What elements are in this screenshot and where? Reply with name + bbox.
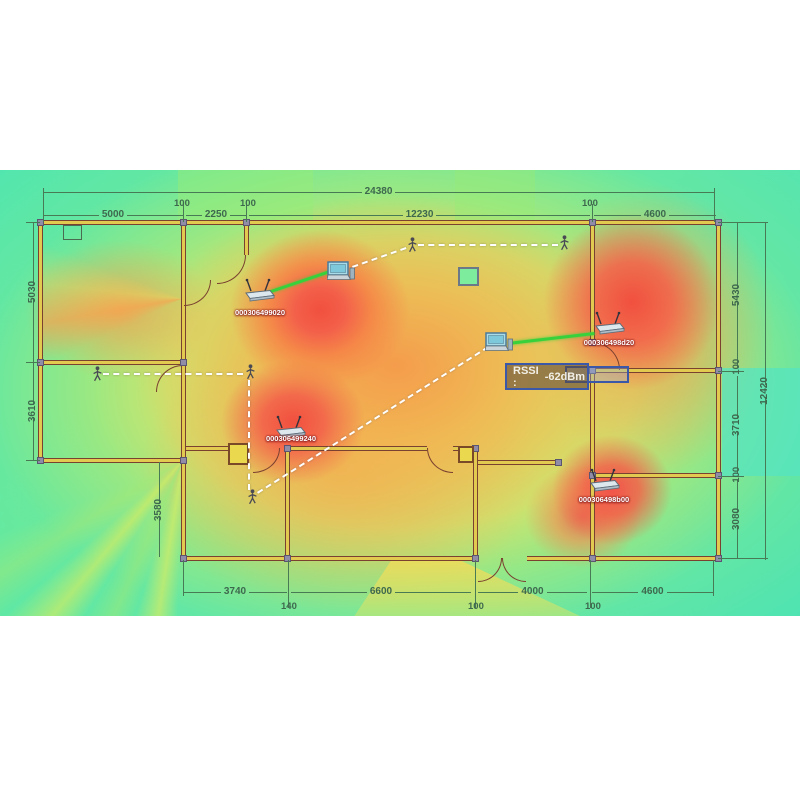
dim-top-100-a: 100: [174, 199, 190, 209]
wall-left-stub: [183, 446, 228, 451]
dim-total-width: 24380: [43, 185, 714, 199]
dim-left-inner-3580: 3580: [152, 462, 166, 557]
dim-label: 5000: [99, 210, 127, 220]
dim-left-5030: 5030: [26, 222, 40, 362]
dim-right-100-b: 100: [732, 467, 742, 483]
wall-node: [180, 457, 187, 464]
laptop-icon: [485, 332, 514, 353]
dim-right-3080: 3080: [730, 480, 744, 558]
dim-label: 4600: [638, 587, 666, 597]
person-icon[interactable]: [244, 364, 257, 386]
dim-top-100-b: 100: [240, 199, 256, 209]
dim-label: 4000: [518, 587, 546, 597]
wall-left-divider: [40, 360, 185, 365]
laptop-client-1[interactable]: [327, 261, 356, 287]
rssi-tooltip: RSSI : -62dBm: [505, 363, 589, 390]
dim-top-5000: 5000: [43, 208, 183, 222]
dim-bottom-4000: 4000: [478, 585, 587, 599]
dim-top-4600: 4600: [594, 208, 716, 222]
wall-bottomroom-right: [473, 448, 478, 558]
dim-bottom-6600: 6600: [291, 585, 471, 599]
dim-label: 2250: [202, 210, 230, 220]
dim-bottom-3740: 3740: [183, 585, 287, 599]
wall-node: [284, 445, 291, 452]
dim-bottom-100-a: 100: [468, 602, 484, 612]
ap-mac-label: 000306498b00: [579, 495, 629, 504]
person-icon[interactable]: [246, 489, 259, 511]
rssi-label: RSSI :: [513, 365, 539, 389]
wall-center-stub: [475, 460, 558, 465]
dim-total-height: 12420: [758, 222, 772, 560]
floorplan-heatmap-view[interactable]: 24380 5000 2250 12230 4600 100 100 100 5…: [0, 170, 800, 616]
dim-label: 3610: [27, 400, 39, 422]
ap-mac-label: 000306499240: [266, 434, 316, 443]
dim-top-100-c: 100: [582, 199, 598, 209]
column-icon: [228, 443, 249, 465]
dim-label: 3080: [731, 508, 743, 530]
dim-left-3610: 3610: [26, 362, 40, 460]
person-icon[interactable]: [406, 237, 419, 259]
dim-label: 12420: [759, 377, 771, 405]
dim-label: 3740: [221, 587, 249, 597]
ap-mac-label: 000306498d20: [584, 338, 634, 347]
dim-label: 5030: [27, 281, 39, 303]
dim-bottom-140: 140: [281, 602, 297, 612]
wall-exterior-right: [716, 222, 721, 558]
router-icon: [240, 278, 278, 304]
router-icon: [590, 311, 628, 337]
rssi-value: -62dBm: [545, 371, 585, 383]
dim-right-3710: 3710: [730, 376, 744, 473]
person-icon[interactable]: [91, 366, 104, 388]
heat-ray-room1-wedge: [42, 224, 182, 360]
wall-top-short: [244, 222, 249, 255]
path-line: [418, 244, 558, 246]
dim-label: 3710: [731, 413, 743, 435]
wall-bottomroom-left: [285, 448, 290, 558]
dim-tick: [713, 560, 714, 596]
dim-label: 6600: [367, 587, 395, 597]
dim-bottom-4600: 4600: [592, 585, 713, 599]
wall-right-section-b: [590, 370, 595, 558]
path-line: [248, 380, 250, 490]
router-icon: [585, 468, 623, 494]
window-icon: [63, 225, 82, 240]
wall-bottomroom-top-a: [287, 446, 427, 451]
dim-label: 5430: [731, 284, 743, 306]
dim-top-2250: 2250: [186, 208, 246, 222]
column-icon: [458, 446, 474, 463]
dim-label: 3580: [153, 498, 165, 520]
access-point-1[interactable]: [240, 278, 278, 309]
dim-label: 4600: [641, 210, 669, 220]
dim-top-12230: 12230: [249, 208, 590, 222]
wall-node: [180, 359, 187, 366]
dim-tick: [26, 460, 40, 461]
path-line: [103, 373, 243, 375]
dim-bottom-100-b: 100: [585, 602, 601, 612]
laptop-icon: [327, 261, 356, 282]
wall-exterior-bottom-right: [527, 556, 720, 561]
wall-exterior-bottom-left: [183, 556, 478, 561]
ap-mac-label: 000306499020: [235, 308, 285, 317]
laptop-client-2[interactable]: [485, 332, 514, 358]
wifi-survey-canvas: 24380 5000 2250 12230 4600 100 100 100 5…: [0, 0, 800, 800]
dim-label: 24380: [362, 187, 396, 197]
dim-right-100-a: 100: [732, 359, 742, 375]
person-icon[interactable]: [558, 235, 571, 257]
dim-label: 12230: [403, 210, 437, 220]
dim-right-5430: 5430: [730, 222, 744, 368]
table-icon[interactable]: [458, 267, 479, 286]
wall-node: [555, 459, 562, 466]
